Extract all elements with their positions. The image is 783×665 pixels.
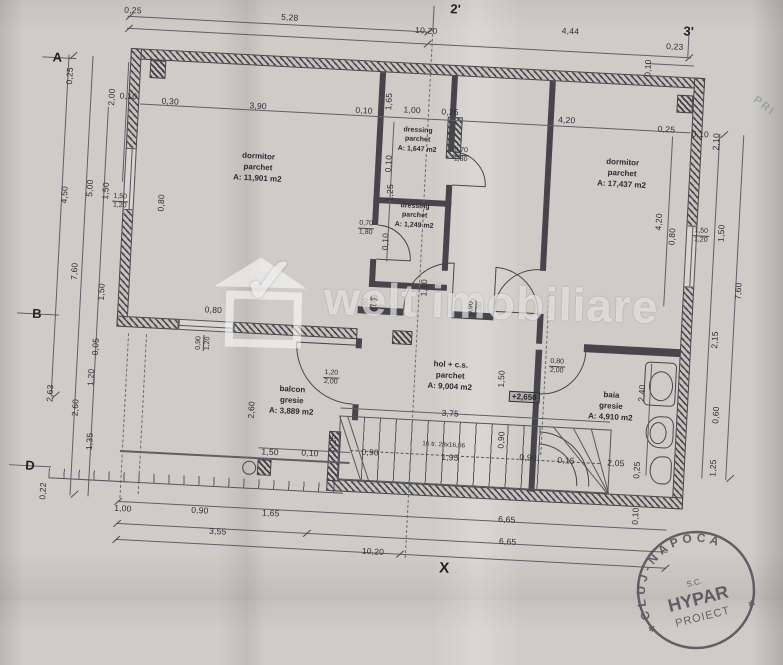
- railing-ticks: [48, 468, 343, 493]
- wall-interior: [540, 81, 556, 271]
- dimension-line: [115, 539, 666, 569]
- dimension-label: 1,00: [114, 503, 132, 514]
- dimension-label: 1,50: [100, 182, 111, 200]
- dimension-label: 0,25: [64, 67, 75, 85]
- axis-marker-d: D: [25, 458, 35, 473]
- wall-interior: [536, 314, 544, 344]
- tick-mark: [71, 490, 79, 497]
- dimension-line: [725, 135, 744, 480]
- dimension-label: 1,25: [707, 459, 718, 477]
- level-marker: +2,650: [509, 391, 540, 404]
- dimension-label: 2,60: [246, 401, 257, 419]
- dimension-label: 2,00: [106, 88, 117, 106]
- dim-value: 2,00: [476, 301, 485, 317]
- dim-value: 1,80: [358, 229, 374, 238]
- dimension-label: 3,75: [441, 408, 459, 419]
- floor-plan: A B D 2' 3' X dormitorparchetA: 11,901 m…: [107, 48, 705, 527]
- dimension-label: 0,25: [631, 461, 642, 479]
- dimension-label: 4,50: [59, 186, 70, 204]
- dimension-label: 0,10: [380, 233, 391, 251]
- dimension-label: 0,25: [327, 434, 338, 452]
- room-label-dressing-2: dressingparchetA: 1,249 m2: [394, 201, 434, 231]
- window-balcony: [178, 319, 234, 333]
- dimension-label: 0,10: [355, 105, 373, 116]
- corner-stamp-text: PRI: [751, 94, 778, 118]
- room-label-bathroom: baiagresieA: 4,910 m2: [588, 389, 634, 424]
- axis-marker-2: 2': [450, 1, 461, 17]
- door-arc: [494, 267, 540, 313]
- dimension-label: 1,20: [85, 368, 96, 386]
- terrace-dashed-line: [138, 334, 147, 494]
- dimension-label: 2,60: [70, 399, 81, 417]
- company-stamp: CLUJ-NAPOCA S.C. HYPAR PROIECT ✱ ✱: [621, 515, 771, 665]
- door-size-label: 1,202,00: [323, 369, 339, 387]
- dimension-label: 0,10: [691, 128, 709, 139]
- dimension-label: 1,65: [383, 93, 394, 111]
- room-label-hall: hol + c.s.parchetA: 9,004 m2: [427, 359, 473, 394]
- dim-value: 1,20: [112, 202, 128, 211]
- dim-value: 2,00: [371, 297, 380, 313]
- dimension-line: [116, 523, 667, 553]
- dimension-label: 0,05: [90, 338, 101, 356]
- room-area: A: 1,647 m2: [397, 144, 436, 155]
- pillar: [392, 330, 413, 345]
- dimension-label: 1,00: [403, 104, 421, 115]
- dim-value: 1,20: [693, 236, 709, 245]
- dimension-label: 4,20: [653, 213, 664, 231]
- dimension-label: 4,44: [562, 26, 580, 37]
- dimension-label: 2,05: [607, 458, 625, 469]
- door-size-label: 0,902,00: [362, 297, 380, 313]
- tick-mark: [726, 475, 734, 482]
- dimension-label: 0,10: [383, 155, 394, 173]
- room-area: A: 3,889 m2: [269, 405, 314, 418]
- dimension-label: 7,60: [733, 282, 744, 300]
- dimension-label: 1,95: [441, 452, 459, 463]
- dimension-label: 1,50: [261, 446, 279, 457]
- dimension-label: 1,10: [418, 279, 429, 297]
- dimension-label: 10,20: [362, 546, 385, 557]
- dimension-line: [663, 136, 673, 306]
- dimension-label: 0,22: [37, 482, 48, 500]
- dimension-label: 2,15: [709, 331, 720, 349]
- dim-value: 1,20: [204, 335, 213, 351]
- pillar: [149, 60, 166, 79]
- axis-marker-x: X: [439, 559, 450, 577]
- dimension-label: 2,10: [710, 133, 721, 151]
- dimension-label: 7,60: [69, 262, 80, 280]
- dimension-label: 1,25: [384, 184, 395, 202]
- dimension-label: 0,10: [630, 507, 641, 525]
- dimension-line: [701, 134, 720, 479]
- dimension-label: 0,15: [557, 455, 575, 466]
- bidet: [649, 456, 672, 485]
- dimension-label: 0,90: [496, 431, 507, 449]
- dimension-label: 4,20: [558, 114, 576, 125]
- dimension-label: 0,90: [519, 452, 537, 463]
- dimension-label: 1,50: [96, 283, 107, 301]
- dimension-label: 1,50: [716, 224, 727, 242]
- dimension-label: 6,65: [499, 536, 517, 547]
- dimension-label: 5,00: [84, 179, 95, 197]
- dimension-label: 1,50: [496, 370, 507, 388]
- wall-exterior-right: [672, 78, 706, 510]
- room-label-dormitor-left: dormitorparchetA: 11,901 m2: [233, 150, 283, 185]
- dimension-label: 0,80: [666, 228, 677, 246]
- dim-value: 2,00: [549, 367, 565, 376]
- dimension-label: 0,90: [191, 505, 209, 516]
- dimension-label: 2,63: [44, 384, 55, 402]
- door-size-label: 0,701,80: [453, 146, 469, 164]
- dimension-label: 0,90: [361, 447, 379, 458]
- dimension-label: 0,10: [301, 447, 319, 458]
- wall-interior: [442, 185, 452, 271]
- dimension-label: 0,25: [441, 106, 459, 117]
- room-area: A: 1,249 m2: [394, 220, 433, 231]
- wall-balcony-top-right: [233, 322, 357, 339]
- wall-balcony-right: [356, 338, 363, 348]
- dim-value: 1,80: [453, 155, 469, 164]
- dimension-label: 1,35: [84, 432, 95, 450]
- room-label-dressing-1: dressingparchetA: 1,647 m2: [397, 125, 437, 155]
- sink: [643, 361, 677, 407]
- dimension-line: [646, 63, 694, 67]
- room-name: hol + c.s.: [428, 359, 473, 372]
- axis-marker-3: 3': [683, 23, 694, 39]
- floorplan-photo: { "plan": { "rooms": [ {"name":"dormitor…: [0, 0, 783, 600]
- window-size-label: 1,501,20: [112, 193, 128, 211]
- dimension-line: [51, 55, 70, 397]
- dimension-label: 0,30: [161, 96, 179, 107]
- room-label-balcony: balcongresieA: 3,889 m2: [269, 384, 315, 419]
- window-size-label: 1,501,20: [693, 227, 709, 245]
- dimension-label: 0,10: [642, 59, 653, 77]
- tick-mark: [720, 131, 728, 138]
- dimension-label: 0,25: [124, 5, 142, 16]
- dimension-label: 0,23: [666, 41, 684, 52]
- room-area: A: 17,437 m2: [597, 178, 646, 191]
- window-size-label: 0,901,20: [195, 335, 213, 351]
- room-area: A: 11,901 m2: [233, 172, 282, 185]
- dimension-label: 0,80: [204, 304, 222, 315]
- toilet: [645, 415, 675, 448]
- pillar: [257, 459, 272, 476]
- axis-marker-b: B: [32, 306, 42, 321]
- axis-marker-a: A: [52, 49, 62, 64]
- dimension-label: 3,55: [209, 526, 227, 537]
- room-label-dormitor-right: dormitorparchetA: 17,437 m2: [597, 156, 648, 191]
- door-size-label: 0,902,00: [467, 300, 485, 316]
- column-symbol: [242, 460, 257, 475]
- room-area: A: 4,910 m2: [588, 411, 633, 424]
- wall-balcony-top-left: [116, 316, 178, 330]
- dim-value: 2,00: [323, 378, 339, 387]
- door-size-label: 0,701,80: [358, 220, 374, 238]
- stamp-star-icon: ✱: [647, 623, 657, 635]
- dimension-label: 2,40: [636, 384, 647, 402]
- door-size-label: 0,802,00: [549, 358, 565, 376]
- dimension-label: 5,28: [281, 12, 299, 23]
- room-area: A: 9,004 m2: [427, 380, 472, 393]
- wall-bathroom-top: [584, 344, 681, 357]
- dimension-label: 0,10: [120, 90, 138, 101]
- pillar: [676, 95, 693, 114]
- dimension-label: 10,20: [415, 25, 438, 36]
- dimension-label: 1,65: [262, 508, 280, 519]
- dimension-label: 3,90: [249, 100, 267, 111]
- dimension-label: 0,80: [155, 194, 166, 212]
- dimension-label: 6,65: [498, 514, 516, 525]
- dimension-label: 0,60: [710, 406, 721, 424]
- dimension-label: 0,25: [658, 124, 676, 135]
